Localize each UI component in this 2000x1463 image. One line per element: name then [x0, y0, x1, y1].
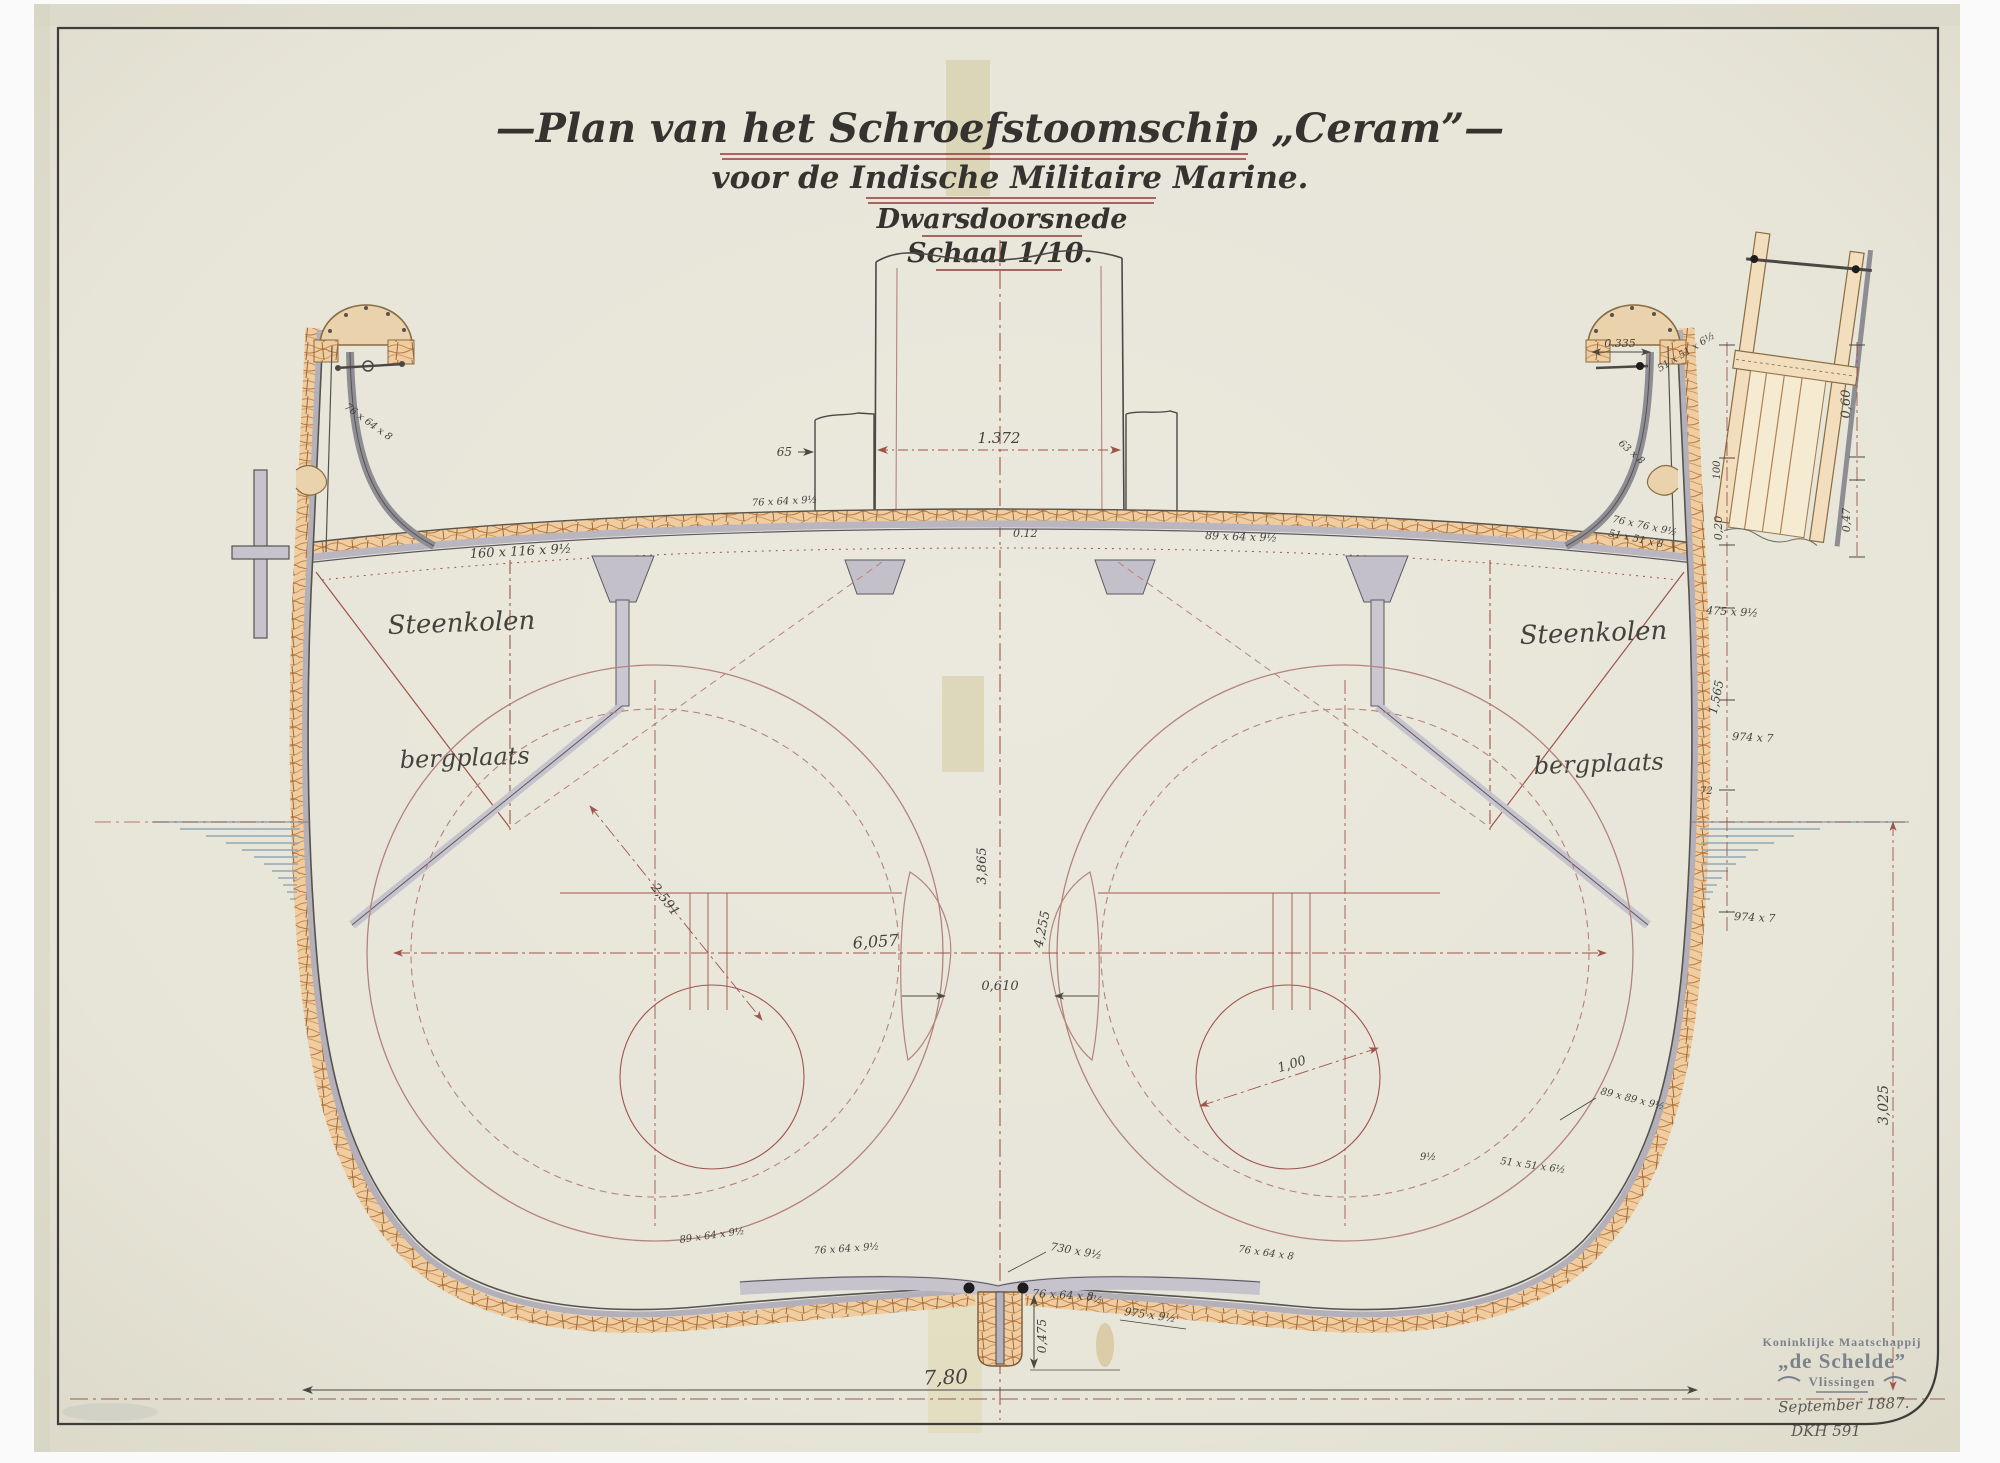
bilge-thickness-spec: 9½ — [1420, 1152, 1436, 1163]
chain-bulwark-dim: 0,60 — [1839, 390, 1854, 419]
chain-side-dim: 3,025 — [1876, 1085, 1892, 1125]
beam-overall-dim: 7,80 — [923, 1364, 969, 1390]
casing-side-dim: 65 — [777, 445, 792, 459]
funnel-width-dim: 1.372 — [978, 429, 1021, 447]
stain-spot — [1096, 1323, 1114, 1367]
paper-left-shadow — [34, 4, 50, 1452]
rail-timber-left-b — [388, 340, 414, 364]
deck-beam-spec-right: 89 x 64 x 9½ — [1205, 529, 1277, 545]
paper-top-shadow — [34, 4, 1960, 26]
bulwark-opening-dim: 0.335 — [1604, 337, 1636, 350]
compartment-label-left-upper: Steenkolen — [387, 606, 536, 641]
drawing-title-line2: voor de Indische Militaire Marine. — [712, 160, 1309, 196]
pillar-right — [1371, 600, 1384, 706]
rod-eye-left-b — [399, 361, 405, 367]
scanned-drawing-sheet: —Plan van het Schroefstoomschip „Ceram”—… — [0, 0, 2000, 1463]
stamp-city-line: Vlissingen — [1808, 1374, 1875, 1389]
pencil-smudge — [62, 1403, 158, 1421]
drawing-title-line1: —Plan van het Schroefstoomschip „Ceram”— — [496, 105, 1504, 152]
side-plate-lower-spec: 974 x 7 — [1734, 910, 1776, 925]
drawing-subtitle: Dwarsdoorsnede — [876, 204, 1128, 235]
chain-rail-dim: 100 — [1712, 460, 1723, 480]
keel-bolt-left — [964, 1283, 975, 1294]
keel-depth-dim: 0,475 — [1035, 1319, 1049, 1353]
tape-stain-middle — [942, 676, 984, 772]
sheer-plate-spec: 475 x 9½ — [1705, 604, 1758, 620]
rail-timber-left-a — [314, 340, 338, 362]
keel-bolt-right — [1018, 1283, 1029, 1294]
rod-eye-left-a — [335, 365, 341, 371]
stamp-name-line: „de Schelde” — [1778, 1349, 1906, 1373]
rod-eye-right — [1636, 362, 1644, 370]
boiler-gap-dim: 0,610 — [981, 979, 1018, 994]
chain-sheer-dim: 0,47 — [1840, 508, 1853, 533]
boiler-room-width-dim: 6,057 — [852, 930, 900, 952]
waterline-mark: 72 — [1700, 786, 1713, 797]
ship-blueprint-drawing: —Plan van het Schroefstoomschip „Ceram”—… — [0, 0, 2000, 1463]
chain-deck-edge-dim: 0,20 — [1712, 516, 1725, 541]
compartment-label-right-lower: bergplaats — [1533, 747, 1664, 780]
compartment-label-right-upper: Steenkolen — [1519, 616, 1668, 651]
keel-steel-bar — [996, 1292, 1004, 1364]
compartment-label-left-lower: bergplaats — [399, 741, 530, 774]
centerline-height-dim: 3,865 — [975, 847, 990, 884]
pillar-left — [616, 600, 629, 706]
side-plate-upper-spec: 974 x 7 — [1732, 730, 1774, 745]
pencil-number: DKH 591 — [1790, 1422, 1861, 1440]
stamp-company-line: Koninklijke Maatschappij — [1762, 1335, 1921, 1349]
